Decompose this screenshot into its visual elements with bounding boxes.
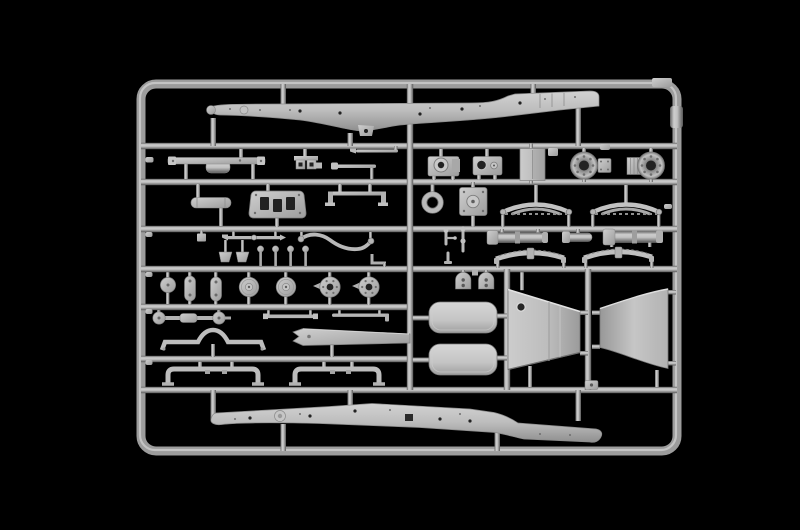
frame-boss xyxy=(670,106,683,128)
sprue-photo-canvas: Light grey injection-molded plastic mode… xyxy=(0,0,800,530)
part-axle-coupler xyxy=(598,159,611,173)
mold-tab xyxy=(652,78,672,87)
part-latch-bracket xyxy=(585,381,598,390)
part-radiator-core xyxy=(520,144,545,184)
model-kit-sprue-photo: Light grey injection-molded plastic mode… xyxy=(0,0,800,530)
